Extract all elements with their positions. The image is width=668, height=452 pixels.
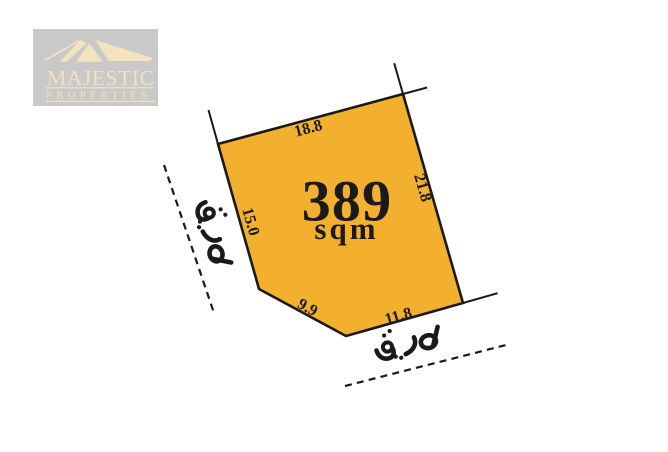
svg-text:MAJESTIC: MAJESTIC <box>47 66 155 90</box>
svg-text:PROPERTIES: PROPERTIES <box>46 90 151 102</box>
svg-text:sqm: sqm <box>314 211 378 246</box>
